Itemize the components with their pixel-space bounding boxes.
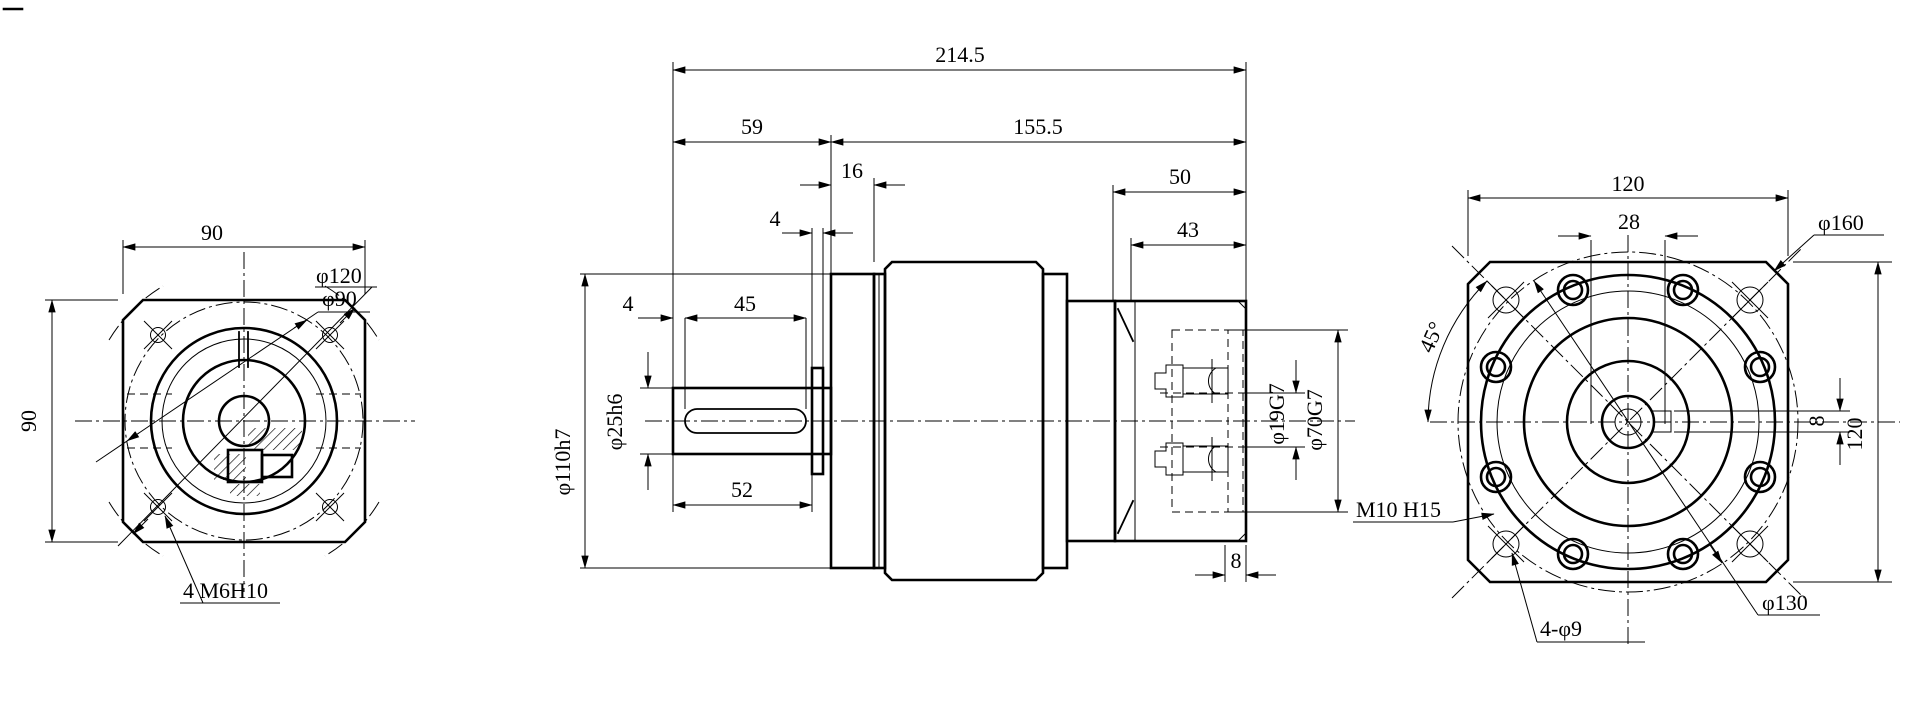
dim-43: 43 [1131, 217, 1246, 245]
dim-text: 43 [1177, 217, 1199, 242]
dim-key-4: 4 [623, 291, 674, 318]
tapped-hole [316, 321, 344, 349]
dim-text: φ110h7 [550, 429, 575, 496]
gearbox-drawing: 90 90 φ120 φ90 4 M6H10 [0, 0, 1914, 711]
dim-key-45: 45 [685, 291, 806, 318]
dim-text: φ70G7 [1302, 389, 1327, 451]
dim-text: φ25h6 [602, 394, 627, 451]
dim-text: 155.5 [1013, 114, 1063, 139]
dim-angle-45: 45° [1413, 281, 1487, 422]
hatch-area [214, 454, 246, 480]
dim-50: 50 [1113, 164, 1246, 192]
dim-16: 16 [800, 158, 905, 185]
dim-phi110h7: φ110h7 [550, 274, 585, 568]
adapter-chamfer [1118, 501, 1133, 533]
label-phi90: φ90 [96, 286, 370, 462]
label-text: φ130 [1762, 590, 1808, 615]
dim-text: 8 [1231, 548, 1242, 573]
dim-text: 8 [1804, 416, 1829, 427]
label-text: 4-φ9 [1540, 616, 1582, 641]
right-view: 120 28 φ160 45° 8 120 M10 H15 [1353, 171, 1900, 645]
hatch-area [248, 428, 302, 450]
left-view: 90 90 φ120 φ90 4 M6H10 [16, 220, 415, 603]
hatch-area [230, 484, 260, 496]
corner-hole [1732, 526, 1768, 562]
dim-text: 50 [1169, 164, 1191, 189]
dim-text: 120 [1842, 418, 1867, 451]
dim-text: 90 [201, 220, 223, 245]
label-text: M10 H15 [1356, 497, 1441, 522]
dim-52: 52 [673, 477, 812, 505]
label-m6-holes: 4 M6H10 [165, 516, 280, 603]
dim-text: 59 [741, 114, 763, 139]
label-text: φ90 [322, 286, 357, 311]
dim-text: 28 [1618, 209, 1640, 234]
corner-hole [1732, 282, 1768, 318]
drawing-sheet: 90 90 φ120 φ90 4 M6H10 [0, 0, 1914, 711]
adapter-chamfer [1118, 309, 1133, 341]
dim-text: 16 [841, 158, 863, 183]
dim-text: 45° [1413, 318, 1448, 356]
dim-text: 4 [623, 291, 634, 316]
label-m10: M10 H15 [1353, 497, 1494, 522]
dim-text: 120 [1612, 171, 1645, 196]
dim-59: 59 [673, 114, 831, 142]
corner-hole [1488, 282, 1524, 318]
dim-text: φ19G7 [1264, 383, 1289, 445]
label-4-phi9: 4-φ9 [1512, 553, 1645, 642]
dim-text: 45 [734, 291, 756, 316]
section-view: 214.5 59 155.5 16 4 4 45 52 φ110h7 [550, 42, 1355, 582]
label-text: φ120 [316, 263, 362, 288]
corner-hole [1488, 526, 1524, 562]
dim-phi19g7: φ19G7 [1264, 360, 1296, 480]
dim-collar-4: 4 [770, 206, 854, 233]
dim-lip-8: 8 [1195, 548, 1276, 575]
label-text: φ160 [1818, 210, 1864, 235]
tapped-hole [144, 493, 172, 521]
dim-phi25h6: φ25h6 [602, 352, 648, 490]
dim-text: 52 [731, 477, 753, 502]
dim-overall: 214.5 [673, 42, 1246, 70]
label-text: 4 M6H10 [183, 578, 268, 603]
dim-text: 90 [16, 410, 41, 432]
dim-text: 214.5 [935, 42, 985, 67]
tapped-hole [316, 493, 344, 521]
clamp-screw [1155, 359, 1228, 403]
dim-height-90: 90 [16, 300, 118, 542]
clamp-screw [1155, 437, 1228, 481]
dim-text: 4 [770, 206, 781, 231]
tapped-hole [144, 321, 172, 349]
dim-155-5: 155.5 [831, 114, 1246, 142]
